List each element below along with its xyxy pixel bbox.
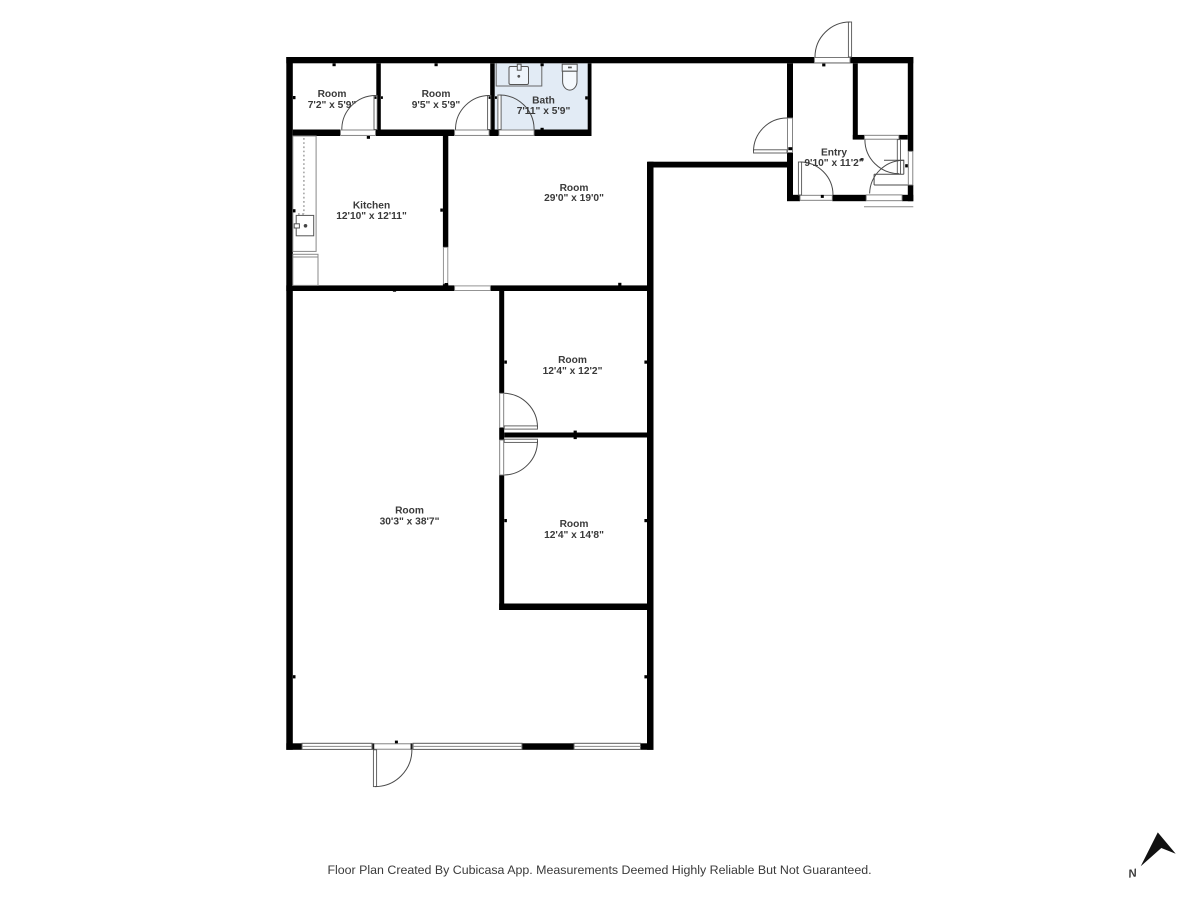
svg-text:12'4" x 12'2": 12'4" x 12'2" bbox=[543, 366, 603, 377]
svg-text:Entry: Entry bbox=[821, 148, 847, 159]
svg-text:Room: Room bbox=[318, 89, 347, 100]
svg-text:12'10" x 12'11": 12'10" x 12'11" bbox=[336, 211, 407, 222]
svg-text:9'10" x 11'2": 9'10" x 11'2" bbox=[804, 158, 863, 169]
svg-text:Room: Room bbox=[422, 89, 451, 100]
svg-text:Floor Plan Created By Cubicasa: Floor Plan Created By Cubicasa App. Meas… bbox=[327, 863, 871, 877]
svg-text:7'11" x 5'9": 7'11" x 5'9" bbox=[517, 106, 571, 117]
svg-text:12'4" x 14'8": 12'4" x 14'8" bbox=[544, 530, 604, 541]
svg-text:Kitchen: Kitchen bbox=[353, 201, 390, 212]
svg-text:Bath: Bath bbox=[532, 96, 555, 107]
svg-text:29'0" x 19'0": 29'0" x 19'0" bbox=[544, 193, 604, 204]
svg-text:Room: Room bbox=[560, 519, 589, 530]
svg-text:30'3" x 38'7": 30'3" x 38'7" bbox=[380, 517, 440, 528]
svg-text:9'5" x 5'9": 9'5" x 5'9" bbox=[412, 100, 461, 111]
svg-text:Room: Room bbox=[395, 506, 424, 517]
svg-text:Room: Room bbox=[558, 355, 587, 366]
svg-text:7'2" x 5'9": 7'2" x 5'9" bbox=[308, 100, 357, 111]
